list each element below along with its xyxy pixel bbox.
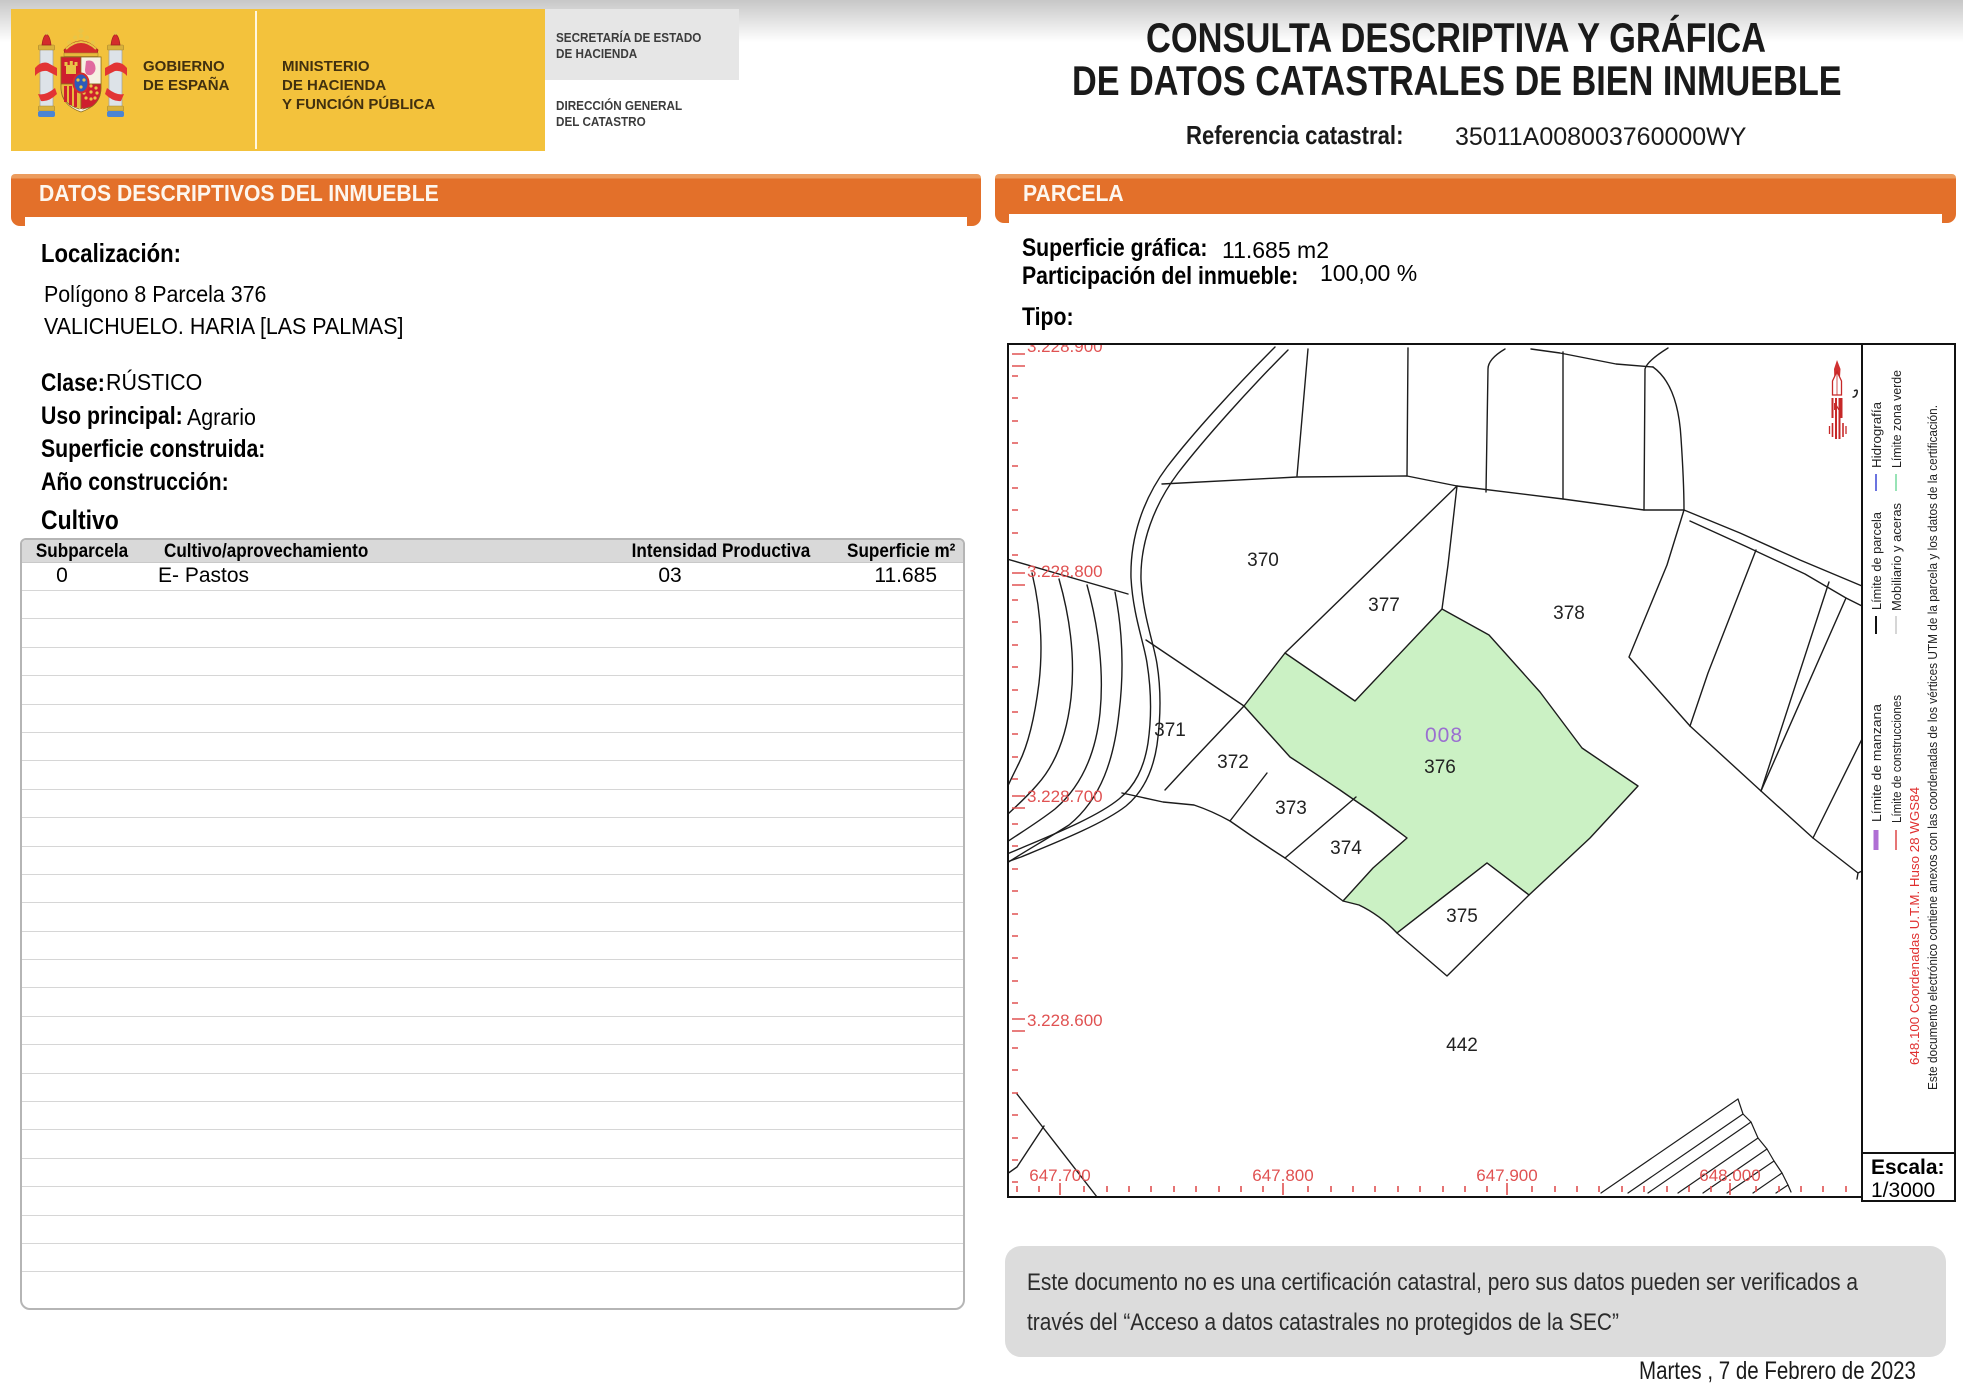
svg-text:376: 376 bbox=[1424, 757, 1456, 778]
svg-text:3.228.700: 3.228.700 bbox=[1027, 787, 1103, 806]
svg-text:442: 442 bbox=[1446, 1035, 1478, 1056]
svg-text:Límite de parcela: Límite de parcela bbox=[1869, 511, 1884, 610]
svg-text:371: 371 bbox=[1154, 720, 1186, 741]
svg-text:Límite zona verde: Límite zona verde bbox=[1889, 370, 1904, 468]
svg-text:647.900: 647.900 bbox=[1476, 1166, 1537, 1185]
svg-text:3.228.800: 3.228.800 bbox=[1027, 562, 1103, 581]
svg-text:Este documento electrónico con: Este documento electrónico contiene anex… bbox=[1925, 405, 1940, 1090]
svg-text:Límite de manzana: Límite de manzana bbox=[1869, 703, 1884, 822]
svg-text:648.100 Coordenadas U.T.M. Hus: 648.100 Coordenadas U.T.M. Huso 28 WGS84 bbox=[1907, 787, 1922, 1065]
svg-text:Límite de construcciones: Límite de construcciones bbox=[1889, 695, 1904, 823]
svg-text:372: 372 bbox=[1217, 752, 1249, 773]
svg-text:373: 373 bbox=[1275, 798, 1307, 819]
svg-text:647.800: 647.800 bbox=[1252, 1166, 1313, 1185]
svg-text:647.700: 647.700 bbox=[1029, 1166, 1090, 1185]
svg-text:375: 375 bbox=[1446, 906, 1478, 927]
svg-text:378: 378 bbox=[1553, 603, 1585, 624]
svg-text:370: 370 bbox=[1247, 550, 1279, 571]
svg-text:377: 377 bbox=[1368, 595, 1400, 616]
svg-text:3.228.600: 3.228.600 bbox=[1027, 1011, 1103, 1030]
svg-text:374: 374 bbox=[1330, 838, 1362, 859]
svg-text:Mobiliario y aceras: Mobiliario y aceras bbox=[1889, 503, 1904, 611]
svg-text:Hidrografía: Hidrografía bbox=[1869, 401, 1884, 468]
svg-text:008: 008 bbox=[1425, 724, 1463, 747]
svg-text:648.000: 648.000 bbox=[1699, 1166, 1760, 1185]
